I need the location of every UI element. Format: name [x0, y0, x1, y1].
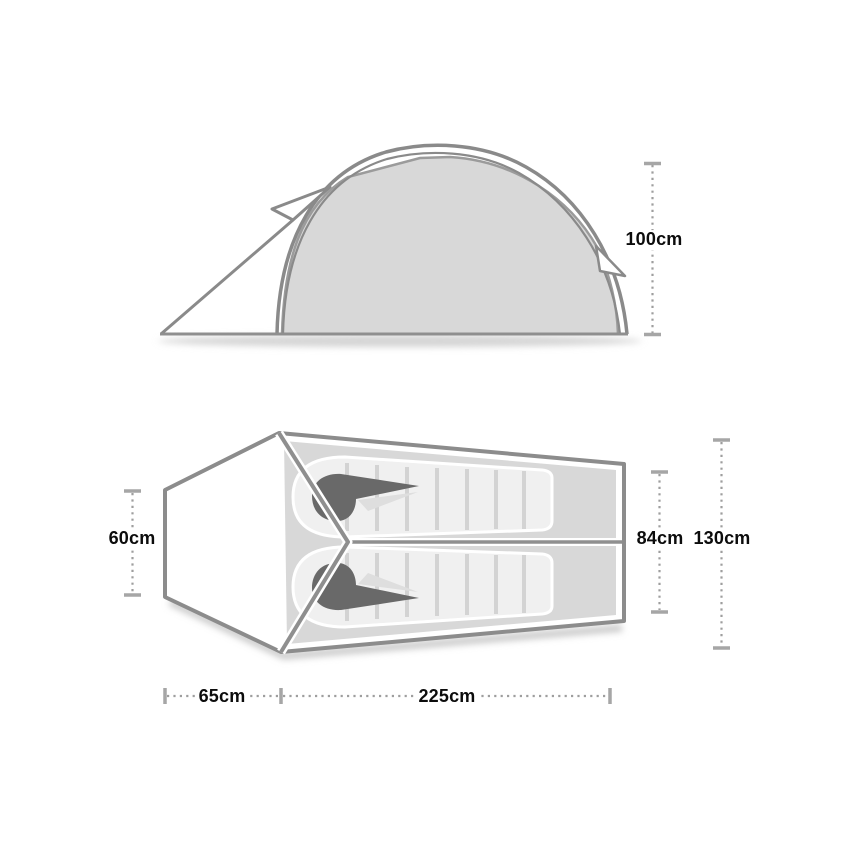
- height-dimension-label: 100cm: [622, 230, 685, 250]
- ground-shadow: [158, 335, 642, 347]
- sleeping-bag-top: [293, 457, 552, 537]
- tent-side-view: [158, 145, 642, 347]
- overall-width-dimension-label: 130cm: [690, 529, 753, 549]
- inner-length-dimension-label: 225cm: [415, 687, 478, 707]
- inner-width-dimension-label: 84cm: [634, 529, 687, 549]
- rear-vent-flap: [596, 246, 625, 276]
- vestibule-length-dimension-label: 65cm: [196, 687, 249, 707]
- sleeping-bag-bottom: [293, 547, 552, 627]
- tent-dimension-diagram: 100cm 60cm 84cm 130cm 65cm 225cm: [0, 0, 860, 860]
- diagram-canvas: [0, 0, 860, 860]
- rear-width-dimension-label: 60cm: [106, 529, 159, 549]
- vestibule-guyline: [161, 220, 293, 334]
- tent-floorplan: [165, 433, 624, 656]
